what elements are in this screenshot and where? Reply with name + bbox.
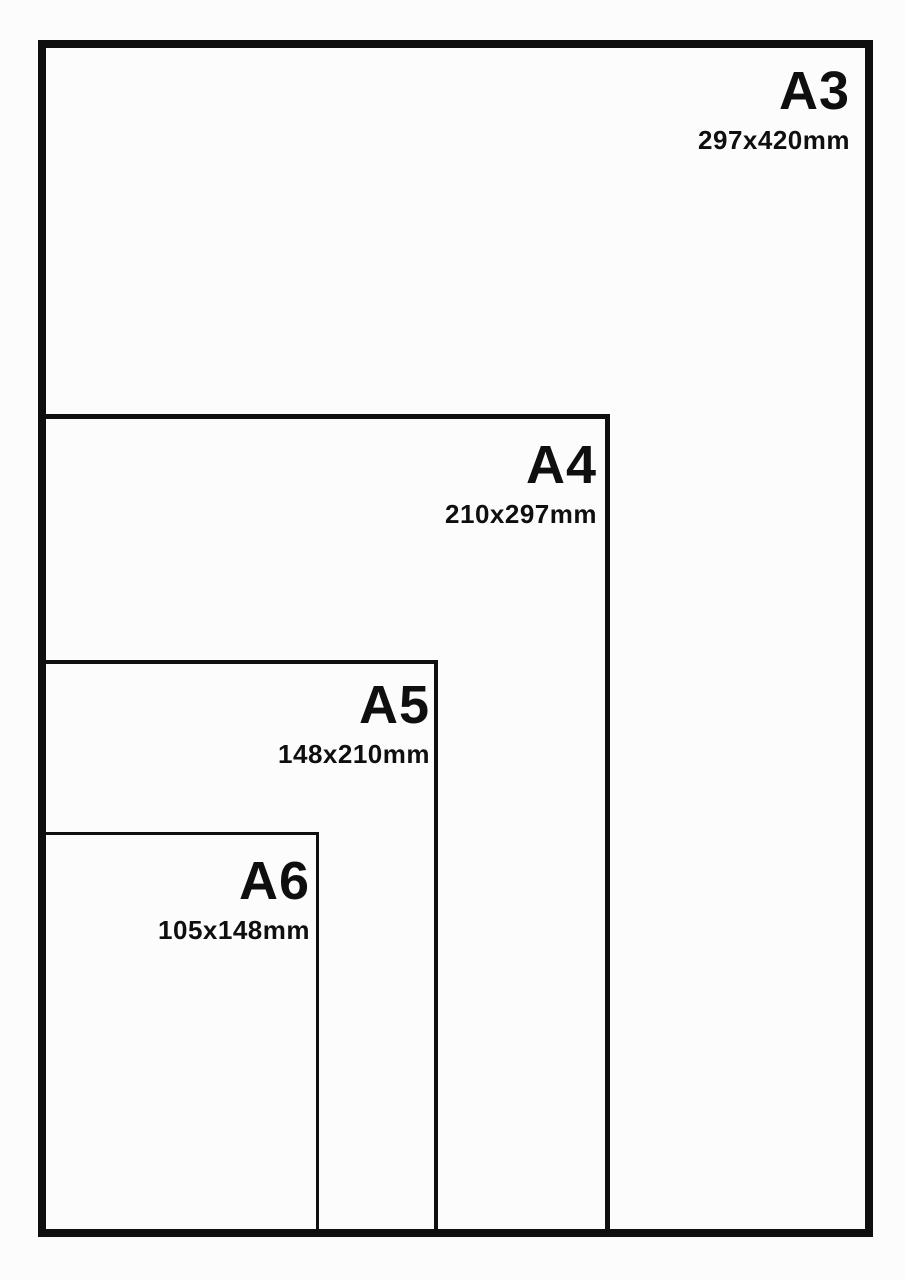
- a5-dimensions: 148x210mm: [278, 741, 430, 767]
- a5-label: A5 148x210mm: [278, 678, 430, 767]
- paper-size-diagram: A3 297x420mm A4 210x297mm A5 148x210mm A…: [0, 0, 905, 1280]
- a4-label: A4 210x297mm: [445, 438, 597, 527]
- a5-size-name: A5: [278, 678, 430, 732]
- a3-dimensions: 297x420mm: [698, 127, 850, 153]
- a6-size-name: A6: [158, 854, 310, 908]
- a3-size-name: A3: [698, 64, 850, 118]
- a4-dimensions: 210x297mm: [445, 501, 597, 527]
- a4-size-name: A4: [445, 438, 597, 492]
- a6-dimensions: 105x148mm: [158, 917, 310, 943]
- a6-label: A6 105x148mm: [158, 854, 310, 943]
- a3-label: A3 297x420mm: [698, 64, 850, 153]
